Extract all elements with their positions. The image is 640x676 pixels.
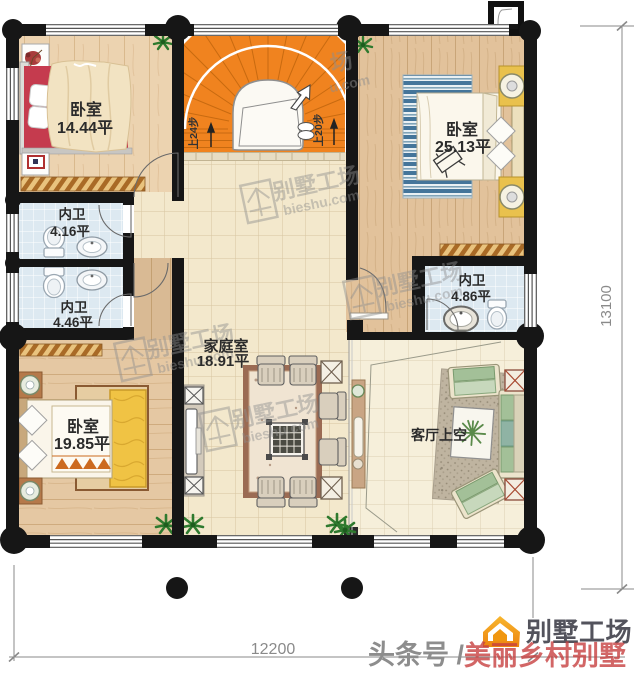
svg-text:头条号 /: 头条号 / <box>368 640 465 670</box>
svg-text:25.13平: 25.13平 <box>435 138 491 156</box>
svg-text:12200: 12200 <box>251 641 296 658</box>
svg-text:19.85平: 19.85平 <box>54 435 110 453</box>
svg-text:14.44平: 14.44平 <box>57 119 113 137</box>
svg-text:卧室: 卧室 <box>446 120 478 139</box>
svg-text:内卫: 内卫 <box>459 272 486 288</box>
svg-text:上20步: 上20步 <box>312 113 325 146</box>
svg-text:卧室: 卧室 <box>70 100 102 119</box>
svg-text:美丽乡村别墅: 美丽乡村别墅 <box>464 640 626 671</box>
svg-text:18.91平: 18.91平 <box>197 353 250 370</box>
svg-text:内卫: 内卫 <box>59 206 86 222</box>
svg-text:上24步: 上24步 <box>187 116 200 149</box>
svg-text:13100: 13100 <box>598 285 615 327</box>
svg-text:卧室: 卧室 <box>67 417 99 436</box>
svg-text:客厅上空: 客厅上空 <box>410 427 467 443</box>
svg-text:内卫: 内卫 <box>61 299 88 315</box>
svg-text:4.16平: 4.16平 <box>50 224 90 239</box>
svg-text:4.46平: 4.46平 <box>53 315 93 330</box>
svg-text:4.86平: 4.86平 <box>451 289 491 304</box>
